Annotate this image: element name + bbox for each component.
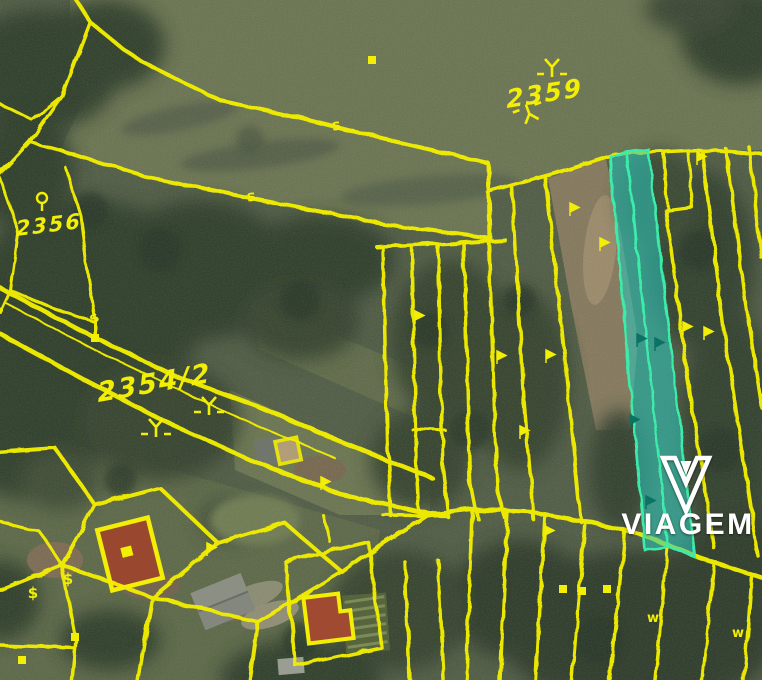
square-symbol [368, 56, 376, 64]
square-symbol [18, 656, 26, 664]
svg-text:$: $ [63, 570, 73, 588]
square-symbol [71, 633, 79, 641]
svg-text:$: $ [28, 584, 38, 602]
svg-text:w: w [647, 611, 659, 626]
square-symbol [559, 585, 567, 593]
w-symbol: w [647, 611, 659, 626]
map-canvas: sss$$ww 235923562354/2 VIAGEM [0, 0, 762, 680]
square-symbol [578, 587, 586, 595]
w-symbol: w [732, 626, 744, 641]
square-symbol [603, 585, 611, 593]
svg-text:w: w [732, 626, 744, 641]
viagem-logo-text: VIAGEM [621, 508, 754, 541]
cadastral-map[interactable]: sss$$ww 235923562354/2 VIAGEM [0, 0, 762, 680]
dollar-symbol: $ [63, 570, 73, 588]
dollar-symbol: $ [28, 584, 38, 602]
square-symbol [91, 334, 99, 342]
